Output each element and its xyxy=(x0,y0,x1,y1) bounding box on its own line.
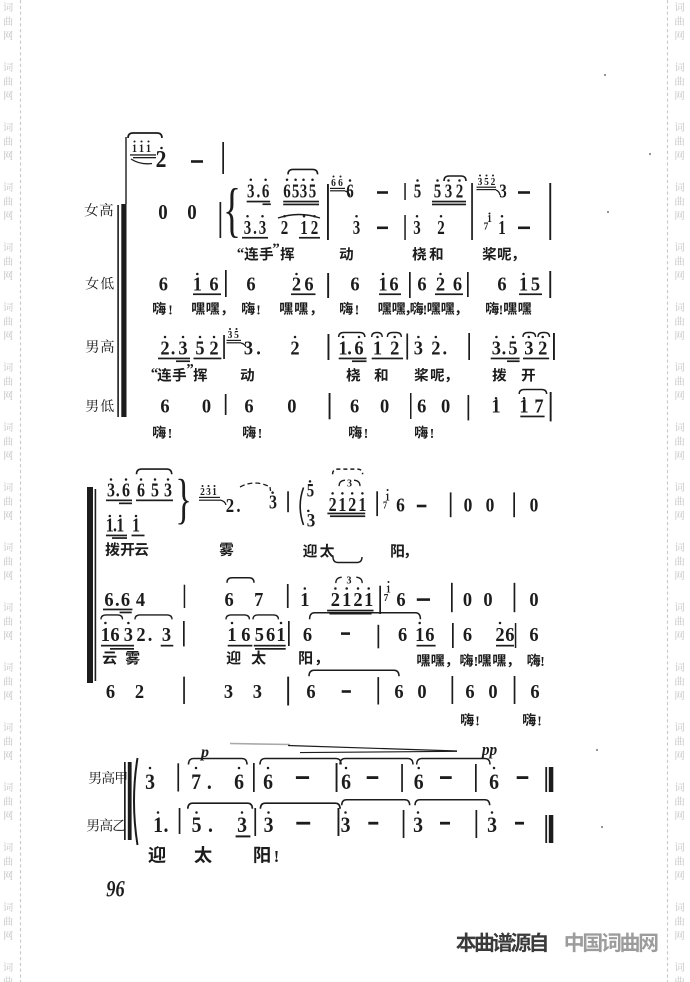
svg-text:2: 2 xyxy=(331,589,340,611)
svg-text:6: 6 xyxy=(104,589,113,611)
svg-text:!: ! xyxy=(430,426,435,441)
svg-text:0: 0 xyxy=(530,494,539,517)
svg-text:”: ” xyxy=(186,362,194,378)
svg-text:1: 1 xyxy=(276,624,285,646)
svg-text:1: 1 xyxy=(212,487,217,499)
svg-text:1: 1 xyxy=(358,493,366,515)
svg-text:6: 6 xyxy=(389,274,398,296)
svg-text:3: 3 xyxy=(347,479,352,490)
svg-text:3: 3 xyxy=(164,479,172,501)
svg-text:!: ! xyxy=(274,847,280,866)
svg-text:0: 0 xyxy=(202,396,211,418)
svg-text:“: “ xyxy=(237,246,245,262)
svg-text:!: ! xyxy=(168,303,173,318)
svg-text:6: 6 xyxy=(396,494,405,517)
svg-text:1: 1 xyxy=(139,143,144,156)
svg-text:7: 7 xyxy=(191,769,201,794)
svg-text:2: 2 xyxy=(431,338,440,360)
svg-text:2: 2 xyxy=(226,495,234,518)
svg-text:6: 6 xyxy=(465,681,474,703)
svg-text:2: 2 xyxy=(436,274,445,296)
svg-text:.: . xyxy=(442,338,447,360)
svg-text:7: 7 xyxy=(383,501,387,512)
svg-text:1: 1 xyxy=(300,216,308,239)
svg-text:.: . xyxy=(171,338,176,360)
svg-text:3: 3 xyxy=(247,179,255,202)
svg-text:pp: pp xyxy=(480,741,497,759)
svg-text:5: 5 xyxy=(234,330,239,342)
svg-text:!: ! xyxy=(423,303,428,318)
svg-text:3: 3 xyxy=(499,179,507,202)
svg-text:!: ! xyxy=(364,426,369,441)
svg-text:3: 3 xyxy=(478,177,483,189)
svg-text:6: 6 xyxy=(283,179,291,202)
svg-text:4: 4 xyxy=(136,589,145,611)
svg-text:!: ! xyxy=(537,714,542,729)
svg-text:6: 6 xyxy=(303,624,312,646)
svg-text:2: 2 xyxy=(390,338,399,360)
svg-text:6: 6 xyxy=(396,589,405,611)
svg-text:6: 6 xyxy=(529,624,538,646)
svg-text:3: 3 xyxy=(237,812,247,837)
svg-text:3: 3 xyxy=(413,812,423,837)
svg-text:0: 0 xyxy=(287,396,296,418)
svg-text:6: 6 xyxy=(425,624,434,646)
svg-text:2: 2 xyxy=(348,493,356,515)
svg-text:1: 1 xyxy=(373,338,382,360)
svg-text:3: 3 xyxy=(162,624,171,646)
svg-text:.: . xyxy=(164,812,169,837)
svg-text:6: 6 xyxy=(234,769,244,794)
svg-text:1: 1 xyxy=(227,624,236,646)
svg-text:6: 6 xyxy=(122,479,130,501)
svg-text:2: 2 xyxy=(329,493,337,515)
svg-text:0: 0 xyxy=(187,201,196,224)
svg-text:6: 6 xyxy=(346,179,354,202)
svg-text:6: 6 xyxy=(137,479,145,501)
svg-text:6: 6 xyxy=(497,274,506,296)
svg-text:.: . xyxy=(257,179,261,202)
svg-text:2: 2 xyxy=(281,216,289,239)
svg-text:3: 3 xyxy=(347,576,352,587)
svg-text:5: 5 xyxy=(292,179,300,202)
svg-text:1: 1 xyxy=(498,216,506,239)
svg-text:1: 1 xyxy=(338,338,347,360)
svg-text:6: 6 xyxy=(414,769,424,794)
svg-text:3: 3 xyxy=(259,216,267,239)
svg-text:7: 7 xyxy=(534,396,543,418)
svg-text:6: 6 xyxy=(398,624,407,646)
svg-text:3: 3 xyxy=(300,179,308,202)
svg-text:.: . xyxy=(236,495,240,518)
svg-text:6: 6 xyxy=(306,681,315,703)
svg-text:5: 5 xyxy=(255,624,264,646)
svg-text:!: ! xyxy=(256,303,261,318)
svg-text:6: 6 xyxy=(394,681,403,703)
svg-text:6: 6 xyxy=(489,769,499,794)
svg-text:6: 6 xyxy=(341,769,351,794)
svg-text:6: 6 xyxy=(110,624,119,646)
svg-text:3: 3 xyxy=(206,487,211,499)
svg-text:0: 0 xyxy=(488,681,497,703)
svg-text:3: 3 xyxy=(341,812,351,837)
svg-text:0: 0 xyxy=(463,589,472,611)
svg-text:3: 3 xyxy=(178,338,187,360)
svg-text:0: 0 xyxy=(529,589,538,611)
svg-text:}: } xyxy=(175,468,191,529)
svg-text:”: ” xyxy=(272,241,280,257)
svg-text:3: 3 xyxy=(124,624,133,646)
svg-text:7: 7 xyxy=(484,221,489,233)
svg-text:6: 6 xyxy=(453,274,462,296)
svg-text:6: 6 xyxy=(262,179,270,202)
svg-text:6: 6 xyxy=(463,624,472,646)
svg-text:6: 6 xyxy=(304,274,313,296)
svg-text:0: 0 xyxy=(158,201,167,224)
svg-text:6: 6 xyxy=(160,396,169,418)
svg-text:.: . xyxy=(207,769,212,794)
svg-text:6: 6 xyxy=(121,589,130,611)
svg-text:96: 96 xyxy=(106,876,125,903)
svg-text:6: 6 xyxy=(331,178,336,190)
svg-text:5: 5 xyxy=(508,338,517,360)
svg-text:2: 2 xyxy=(160,338,169,360)
svg-text:3: 3 xyxy=(492,338,501,360)
svg-text:5: 5 xyxy=(192,812,202,837)
svg-text:1: 1 xyxy=(300,589,309,611)
svg-text:3: 3 xyxy=(253,681,262,703)
svg-text:5: 5 xyxy=(195,338,204,360)
svg-text:0: 0 xyxy=(483,589,492,611)
svg-text:.: . xyxy=(116,479,120,501)
svg-text:.: . xyxy=(208,812,213,837)
svg-text:6: 6 xyxy=(350,396,359,418)
svg-text:2: 2 xyxy=(538,338,547,360)
svg-text:5: 5 xyxy=(434,179,442,202)
svg-text:3: 3 xyxy=(264,812,274,837)
svg-text:2: 2 xyxy=(135,681,144,703)
svg-text:6: 6 xyxy=(209,274,218,296)
svg-text:0: 0 xyxy=(441,396,450,418)
svg-text:6: 6 xyxy=(106,681,115,703)
svg-text:7: 7 xyxy=(254,589,263,611)
svg-text:2: 2 xyxy=(491,177,496,189)
svg-text:!: ! xyxy=(499,303,504,318)
svg-text:3: 3 xyxy=(445,179,453,202)
svg-text:.: . xyxy=(148,624,153,646)
svg-text:2: 2 xyxy=(200,487,205,499)
svg-text:3: 3 xyxy=(487,812,497,837)
svg-text:1: 1 xyxy=(342,589,351,611)
svg-text:6: 6 xyxy=(266,624,275,646)
svg-text:{: { xyxy=(223,177,241,243)
svg-text:6: 6 xyxy=(350,274,359,296)
svg-text:3: 3 xyxy=(414,338,423,360)
svg-text:2: 2 xyxy=(292,274,301,296)
svg-text:2: 2 xyxy=(495,624,504,646)
svg-text:.: . xyxy=(347,338,352,360)
svg-text:1: 1 xyxy=(364,589,373,611)
svg-text:!: ! xyxy=(475,714,480,729)
svg-text:.: . xyxy=(502,338,507,360)
svg-text:3: 3 xyxy=(107,479,115,501)
svg-text:6: 6 xyxy=(354,338,363,360)
svg-text:2: 2 xyxy=(290,338,299,360)
svg-text:6: 6 xyxy=(246,274,255,296)
svg-text:5: 5 xyxy=(414,179,422,202)
svg-text:0: 0 xyxy=(486,494,495,517)
svg-text:!: ! xyxy=(474,654,479,669)
svg-text:6: 6 xyxy=(338,178,343,190)
svg-text:1: 1 xyxy=(415,624,424,646)
svg-text:“: “ xyxy=(151,366,159,382)
svg-text:5: 5 xyxy=(484,177,489,189)
svg-text:0: 0 xyxy=(380,396,389,418)
svg-text:2: 2 xyxy=(156,146,167,172)
svg-text:6: 6 xyxy=(159,274,168,296)
svg-text:2: 2 xyxy=(136,624,145,646)
svg-text:2: 2 xyxy=(311,216,319,239)
svg-text:2: 2 xyxy=(437,216,445,239)
svg-text:!: ! xyxy=(258,426,263,441)
svg-text:!: ! xyxy=(540,654,545,669)
svg-text:7: 7 xyxy=(384,593,389,605)
svg-text:3: 3 xyxy=(269,491,277,513)
svg-text:0: 0 xyxy=(464,494,473,517)
svg-text:.: . xyxy=(253,216,257,239)
svg-text:1: 1 xyxy=(193,274,202,296)
svg-text:3: 3 xyxy=(244,338,253,360)
svg-text:1: 1 xyxy=(132,143,137,156)
svg-text:1: 1 xyxy=(519,274,528,296)
svg-text:3: 3 xyxy=(145,769,155,794)
svg-text:3: 3 xyxy=(224,681,233,703)
svg-text:6: 6 xyxy=(263,769,273,794)
svg-text:2: 2 xyxy=(456,179,464,202)
svg-text:6: 6 xyxy=(530,681,539,703)
svg-text:1: 1 xyxy=(153,812,163,837)
svg-text:6: 6 xyxy=(417,396,426,418)
svg-text:6: 6 xyxy=(224,589,233,611)
svg-text:3: 3 xyxy=(353,216,361,239)
svg-text:!: ! xyxy=(168,426,173,441)
svg-text:!: ! xyxy=(355,303,360,318)
svg-text:3: 3 xyxy=(413,216,421,239)
svg-text:1: 1 xyxy=(378,274,387,296)
svg-text:.: . xyxy=(256,338,261,360)
svg-text:6: 6 xyxy=(241,624,250,646)
svg-text:1: 1 xyxy=(146,143,151,156)
svg-text:6: 6 xyxy=(505,624,514,646)
svg-text:5: 5 xyxy=(151,479,159,501)
svg-text:6: 6 xyxy=(417,274,426,296)
svg-text:6: 6 xyxy=(244,396,253,418)
svg-text:.: . xyxy=(115,589,120,611)
svg-text:3: 3 xyxy=(228,330,233,342)
svg-text:3: 3 xyxy=(307,510,316,531)
svg-text:2: 2 xyxy=(209,338,218,360)
svg-text:5: 5 xyxy=(309,179,317,202)
svg-text:3: 3 xyxy=(244,216,252,239)
svg-text:1: 1 xyxy=(338,493,346,515)
svg-text:3: 3 xyxy=(524,338,533,360)
svg-text:1: 1 xyxy=(101,624,110,646)
svg-text:0: 0 xyxy=(417,681,426,703)
svg-text:2: 2 xyxy=(353,589,362,611)
svg-text:5: 5 xyxy=(307,480,314,501)
svg-text:5: 5 xyxy=(531,274,540,296)
